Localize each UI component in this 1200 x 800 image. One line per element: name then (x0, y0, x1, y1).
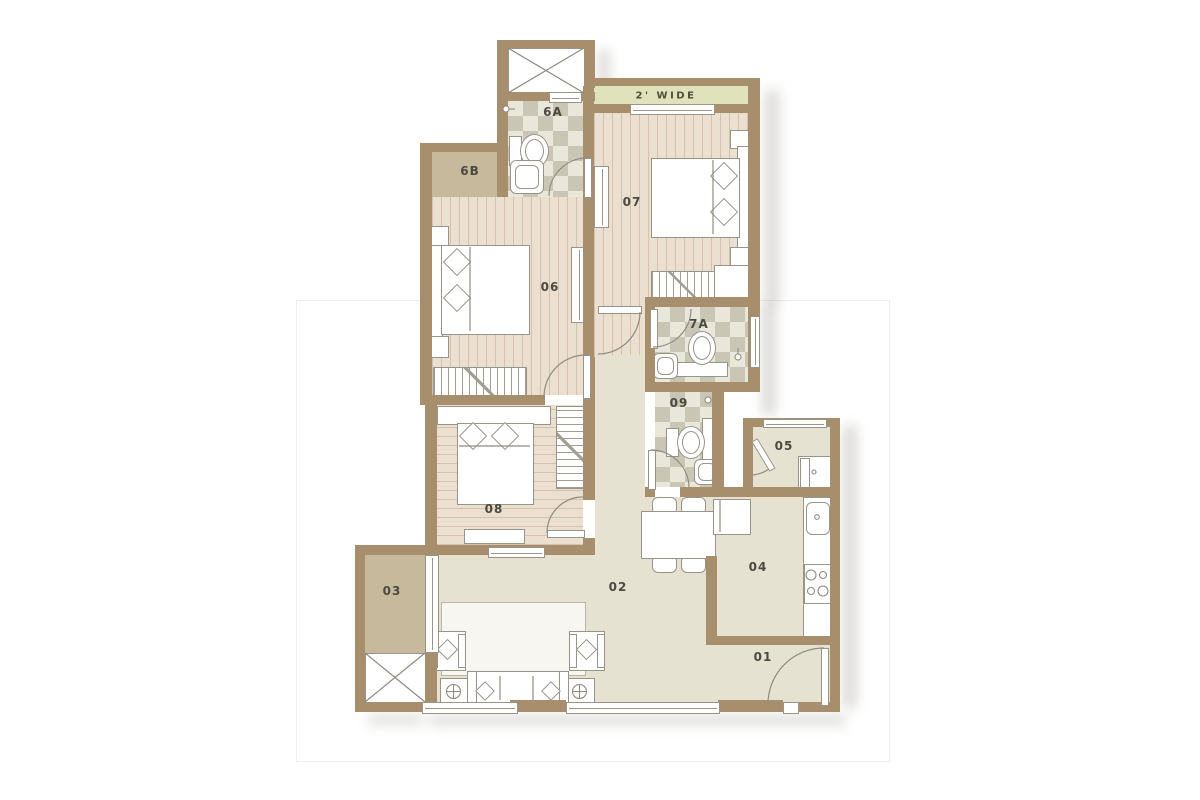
room-label-05: 05 (775, 439, 794, 453)
sliding-window (425, 555, 439, 653)
door-leaf (547, 530, 585, 538)
door-threshold (510, 700, 566, 712)
drop-shadow (368, 715, 423, 724)
washing-machine-door (800, 458, 810, 488)
kitchen-sink-icon (806, 502, 830, 535)
wall-segment (432, 395, 545, 405)
wardrobe-icon (556, 406, 585, 489)
room-label-03: 03 (383, 584, 402, 598)
door-leaf (583, 355, 591, 399)
duct-box (365, 653, 427, 704)
washbasin-bowl (657, 357, 674, 375)
drop-shadow (762, 303, 776, 415)
wall-segment (712, 392, 724, 487)
wall-segment (583, 86, 594, 358)
refrigerator-icon (713, 499, 751, 535)
wall-segment (355, 545, 365, 712)
room-label-04: 04 (749, 560, 768, 574)
drop-shadow (765, 90, 779, 305)
window (750, 316, 760, 368)
hob-icon (804, 564, 833, 604)
room-label-06: 06 (541, 280, 560, 294)
wall-segment (497, 92, 551, 101)
room-label-09: 09 (670, 396, 689, 410)
room-label-6B: 6B (460, 164, 480, 178)
armchair-arm (569, 634, 577, 668)
wall-segment (497, 40, 508, 197)
wall-segment (706, 636, 832, 645)
window (783, 702, 799, 714)
armchair-arm (458, 634, 466, 668)
wall-segment (680, 487, 840, 497)
wall-segment (425, 395, 437, 547)
door-leaf (598, 306, 642, 314)
wall-segment (711, 104, 748, 113)
wall-segment (795, 702, 840, 712)
toilet-bowl (693, 336, 711, 360)
drop-shadow (843, 425, 857, 708)
window (422, 702, 518, 714)
window (763, 419, 827, 428)
wall-segment (360, 702, 422, 712)
wardrobe-icon (651, 271, 715, 300)
door-threshold (718, 700, 783, 712)
wall-segment (420, 143, 432, 405)
wardrobe-icon (433, 367, 527, 398)
wall-segment (584, 78, 760, 86)
sofa-arm (467, 671, 477, 704)
wall-segment (645, 297, 760, 307)
door-leaf (821, 648, 829, 706)
room-label-02: 02 (609, 580, 628, 594)
floor-plan-page: 2' WIDE 6A 6B 07 06 7A 09 05 08 04 02 03… (0, 0, 1200, 800)
dresser-icon (714, 265, 749, 299)
washbasin-bowl (515, 165, 539, 189)
window (630, 104, 715, 115)
dining-table-icon (641, 511, 716, 559)
window (488, 547, 545, 558)
wall-segment (748, 104, 760, 302)
floor-passage-02 (595, 355, 645, 545)
room-label-6A: 6A (543, 105, 563, 119)
tv-console-icon (464, 529, 525, 544)
door-leaf (584, 158, 592, 198)
drop-shadow (430, 715, 845, 725)
toilet-bowl (682, 431, 700, 454)
wall-segment (743, 418, 753, 488)
wall-segment (594, 104, 632, 113)
storage-niche (594, 166, 609, 228)
door-leaf (648, 450, 656, 490)
wall-segment (830, 418, 840, 712)
wall-segment (706, 556, 717, 645)
balcony-width-label: 2' WIDE (636, 91, 697, 102)
room-label-01: 01 (754, 650, 773, 664)
room-label-07: 07 (623, 195, 642, 209)
window (566, 702, 720, 714)
floor-balcony-03 (365, 553, 425, 653)
wall-segment (355, 545, 428, 555)
door-leaf (650, 309, 658, 349)
room-label-7A: 7A (689, 317, 709, 331)
wall-segment (645, 382, 755, 392)
wall-segment (425, 651, 437, 702)
duct-box (508, 48, 586, 95)
wall-segment (497, 40, 595, 48)
armchair-arm (597, 634, 605, 668)
room-label-08: 08 (485, 502, 504, 516)
window (549, 92, 582, 103)
